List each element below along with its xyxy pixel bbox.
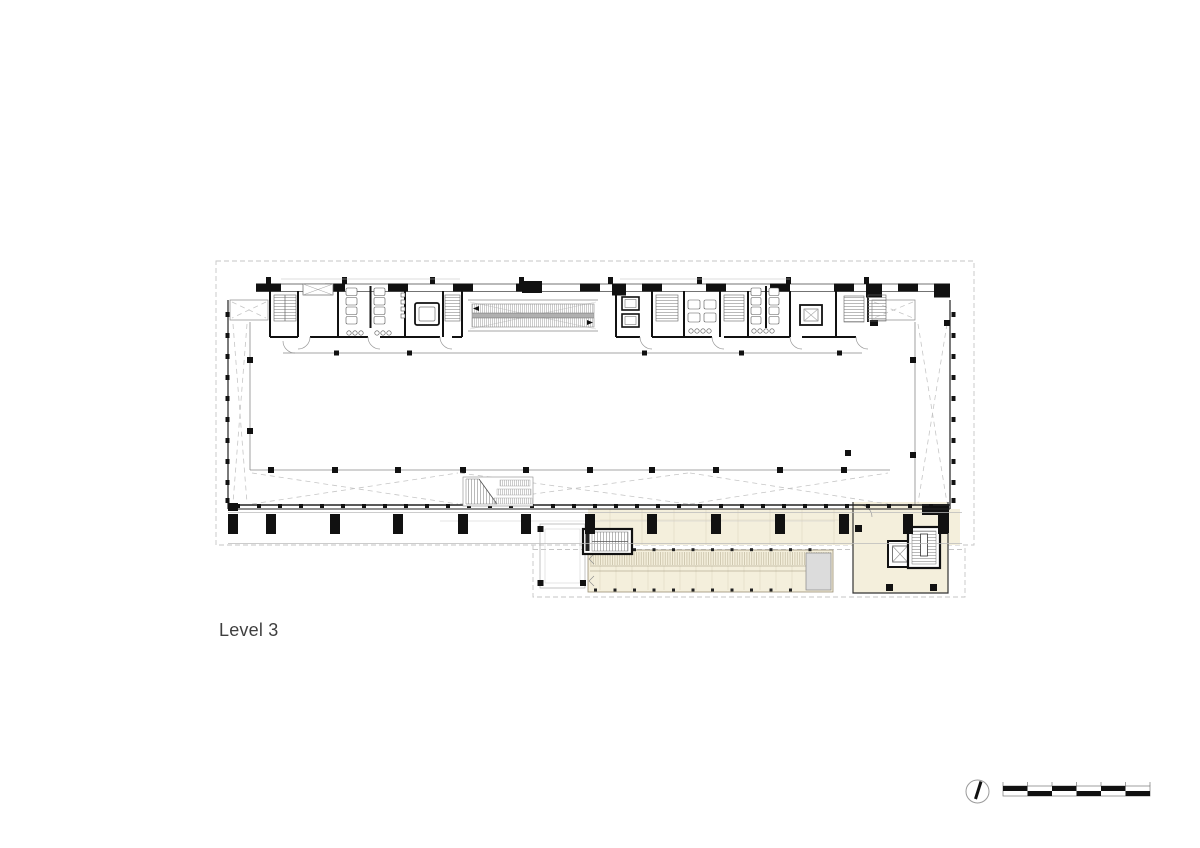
elevator-icon (800, 305, 822, 325)
bottom-brace-band (228, 450, 950, 511)
corridor-edge (283, 351, 862, 356)
toilet-room (346, 288, 405, 335)
shaft-icon (303, 284, 333, 295)
top-facade-wall (256, 277, 950, 298)
stair-icon (868, 295, 886, 321)
open-frame-structure (538, 524, 587, 588)
end-platform (806, 553, 831, 590)
right-core (616, 286, 868, 349)
drawing-sheet: Level 3 (0, 0, 1200, 848)
stair-icon (656, 295, 678, 321)
elevator-icon (622, 297, 639, 327)
floor-plan-drawing (0, 0, 1200, 848)
colonnade-columns (228, 514, 948, 534)
stair-icon (274, 295, 296, 321)
level-label: Level 3 (219, 620, 278, 641)
scale-bar (1003, 782, 1150, 796)
stair-icon (724, 295, 744, 321)
stair-icon (844, 296, 864, 322)
left-brace-strip (226, 300, 269, 509)
right-brace-strip (868, 295, 956, 509)
hall-ramp-stair (463, 477, 533, 506)
elevator-icon (415, 303, 439, 325)
left-core (270, 284, 462, 353)
escalators (468, 300, 598, 331)
toilet-room (688, 300, 716, 333)
stair-icon (445, 295, 460, 321)
north-arrow-icon (966, 780, 989, 803)
